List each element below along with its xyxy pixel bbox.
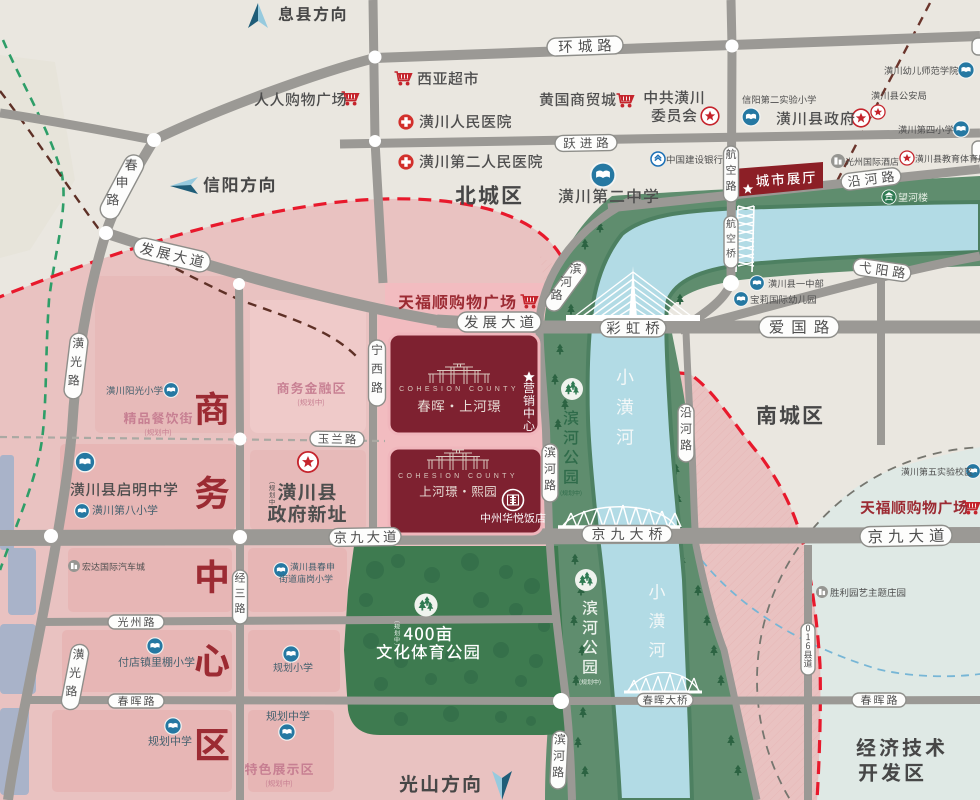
svg-text:COHESION COUNTY: COHESION COUNTY bbox=[398, 473, 518, 480]
svg-text:COHESION COUNTY: COHESION COUNTY bbox=[399, 386, 519, 393]
